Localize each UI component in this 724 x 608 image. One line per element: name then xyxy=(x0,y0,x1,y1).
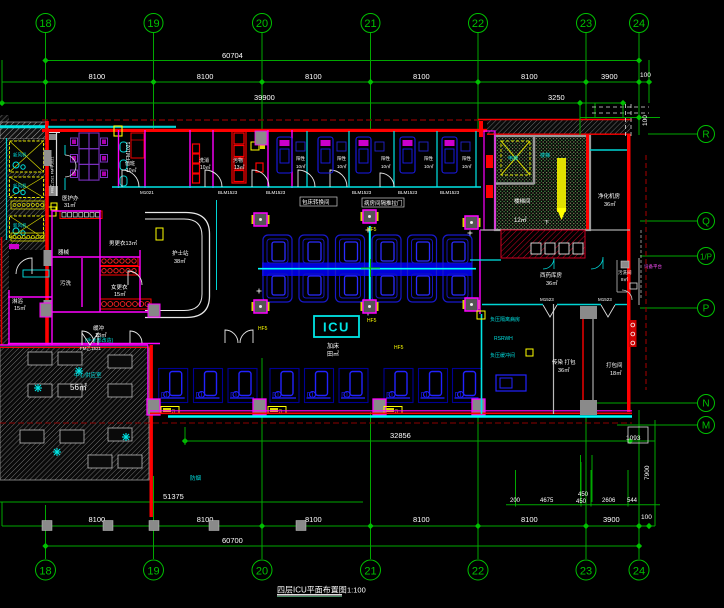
svg-text:19: 19 xyxy=(147,18,159,30)
svg-text:13㎡: 13㎡ xyxy=(234,164,245,171)
svg-text:23: 23 xyxy=(580,566,592,578)
svg-text:女更衣: 女更衣 xyxy=(111,283,128,291)
svg-text:10㎡: 10㎡ xyxy=(337,163,347,169)
svg-text:36㎡: 36㎡ xyxy=(558,366,570,374)
svg-text:21: 21 xyxy=(364,566,376,578)
svg-text:打包间: 打包间 xyxy=(606,361,623,369)
svg-text:7900: 7900 xyxy=(644,465,651,480)
svg-text:器械: 器械 xyxy=(58,248,70,256)
svg-text:新风机: 新风机 xyxy=(13,152,27,159)
svg-text:24: 24 xyxy=(633,566,645,578)
svg-text:护士站: 护士站 xyxy=(172,249,189,257)
svg-text:450: 450 xyxy=(578,492,589,498)
svg-text:3900: 3900 xyxy=(603,515,620,524)
svg-text:污物: 污物 xyxy=(233,157,243,164)
svg-text:四层ICU平面布置图: 四层ICU平面布置图 xyxy=(277,585,347,595)
svg-text:M1523: M1523 xyxy=(598,297,612,302)
svg-text:N: N xyxy=(702,399,709,410)
svg-text:31㎡: 31㎡ xyxy=(64,201,76,209)
svg-text:23: 23 xyxy=(580,18,592,30)
svg-text:19: 19 xyxy=(147,566,159,578)
svg-text:36㎡: 36㎡ xyxy=(604,200,616,208)
svg-text:8100: 8100 xyxy=(197,72,214,81)
svg-text:FM乙1521 FM甲1021: FM乙1521 FM甲1021 xyxy=(50,156,55,193)
svg-text:3250: 3250 xyxy=(548,93,565,102)
svg-text:洗消: 洗消 xyxy=(199,157,209,164)
svg-text:HF5: HF5 xyxy=(367,318,377,324)
svg-text:BLM1523: BLM1523 xyxy=(398,190,418,195)
svg-text:P: P xyxy=(703,304,710,315)
svg-text:100: 100 xyxy=(640,72,651,79)
svg-text:淋浴: 淋浴 xyxy=(12,297,24,305)
svg-text:阳性: 阳性 xyxy=(381,155,390,162)
svg-text:医护办: 医护办 xyxy=(62,194,79,202)
svg-text:阳性: 阳性 xyxy=(296,155,305,162)
svg-text:20: 20 xyxy=(256,18,268,30)
svg-text:防烟: 防烟 xyxy=(190,474,202,482)
svg-text:8100: 8100 xyxy=(305,72,322,81)
svg-text:10㎡: 10㎡ xyxy=(126,167,137,174)
svg-text:1/P: 1/P xyxy=(700,253,712,262)
svg-text:4675: 4675 xyxy=(540,498,554,504)
svg-text:8100: 8100 xyxy=(413,72,430,81)
svg-text:51375: 51375 xyxy=(163,492,184,501)
svg-text:10㎡: 10㎡ xyxy=(200,164,211,171)
svg-text:32856: 32856 xyxy=(390,431,411,440)
svg-text:楼梯间: 楼梯间 xyxy=(514,197,531,205)
svg-text:负压缓冲间: 负压缓冲间 xyxy=(490,352,515,359)
svg-text:病房间隔推拉门: 病房间隔推拉门 xyxy=(364,199,403,207)
svg-text:8100: 8100 xyxy=(305,515,322,524)
svg-text:15㎡: 15㎡ xyxy=(114,290,126,298)
svg-text:包床转换间: 包床转换间 xyxy=(302,198,330,206)
svg-text:新风机: 新风机 xyxy=(13,182,27,189)
svg-text:3900: 3900 xyxy=(601,72,618,81)
svg-text:8100: 8100 xyxy=(521,515,538,524)
svg-text:8100: 8100 xyxy=(89,72,106,81)
svg-text:10㎡: 10㎡ xyxy=(381,163,391,169)
svg-text:HF5: HF5 xyxy=(367,227,377,233)
svg-text:56㎡: 56㎡ xyxy=(70,383,87,392)
svg-text:BLM1523: BLM1523 xyxy=(352,190,372,195)
svg-text:楼梯: 楼梯 xyxy=(540,152,550,159)
svg-text:18: 18 xyxy=(39,18,51,30)
svg-text:HF5: HF5 xyxy=(394,345,404,351)
svg-text:60704: 60704 xyxy=(222,51,243,60)
svg-text:100: 100 xyxy=(642,115,649,126)
svg-text:(手术部改造): (手术部改造) xyxy=(85,337,114,344)
svg-text:8100: 8100 xyxy=(413,515,430,524)
svg-text:加床: 加床 xyxy=(327,342,339,350)
svg-text:8100: 8100 xyxy=(89,515,106,524)
svg-text:3: 3 xyxy=(395,409,398,415)
svg-text:值班: 值班 xyxy=(125,160,135,167)
svg-text:10㎡: 10㎡ xyxy=(296,163,306,169)
svg-text:100: 100 xyxy=(641,514,652,521)
svg-text:西药库房: 西药库房 xyxy=(540,271,563,279)
svg-text:阳性: 阳性 xyxy=(337,155,346,162)
svg-text:8100: 8100 xyxy=(521,72,538,81)
svg-text:缓冲: 缓冲 xyxy=(93,324,105,332)
svg-text:12㎡: 12㎡ xyxy=(514,216,527,224)
svg-text:200: 200 xyxy=(510,498,521,504)
svg-text:中心供应室: 中心供应室 xyxy=(74,371,102,379)
svg-text:BLM1523: BLM1523 xyxy=(266,190,286,195)
svg-text:21: 21 xyxy=(364,18,376,30)
svg-text:传染 打包: 传染 打包 xyxy=(552,358,576,366)
svg-text:24: 24 xyxy=(633,18,645,30)
svg-text:BLM1523: BLM1523 xyxy=(218,190,238,195)
svg-text:M1021: M1021 xyxy=(140,190,154,195)
svg-text:R: R xyxy=(702,130,709,141)
svg-text:8㎡: 8㎡ xyxy=(621,276,629,282)
svg-text:田㎡: 田㎡ xyxy=(327,350,339,358)
svg-text:负压隔离病房: 负压隔离病房 xyxy=(490,316,520,323)
svg-text:M1523: M1523 xyxy=(540,297,554,302)
svg-text:RSRWH: RSRWH xyxy=(494,336,513,342)
svg-text:男更衣13㎡: 男更衣13㎡ xyxy=(109,239,138,247)
svg-text:Q: Q xyxy=(702,217,710,228)
svg-text:污洗: 污洗 xyxy=(60,279,72,287)
svg-text:18㎡: 18㎡ xyxy=(610,369,622,377)
svg-text:450: 450 xyxy=(576,499,587,505)
svg-text:净化机房: 净化机房 xyxy=(598,192,621,200)
svg-text:36㎡: 36㎡ xyxy=(546,279,558,287)
svg-text:FM1021: FM1021 xyxy=(126,141,132,160)
svg-text:新风机: 新风机 xyxy=(13,222,27,229)
svg-text:阳性: 阳性 xyxy=(424,155,433,162)
svg-text:M: M xyxy=(702,421,710,432)
svg-text:22: 22 xyxy=(472,18,484,30)
svg-text:HF5: HF5 xyxy=(258,326,268,332)
svg-text:下: 下 xyxy=(544,220,549,226)
svg-text:20: 20 xyxy=(256,566,268,578)
svg-text:10㎡: 10㎡ xyxy=(462,163,472,169)
svg-text:阳性: 阳性 xyxy=(462,155,471,162)
svg-text:1:100: 1:100 xyxy=(347,586,366,595)
svg-text:10㎡: 10㎡ xyxy=(424,163,434,169)
svg-text:18: 18 xyxy=(39,566,51,578)
svg-text:设备平台: 设备平台 xyxy=(644,263,662,270)
svg-text:22: 22 xyxy=(472,566,484,578)
svg-text:ICU: ICU xyxy=(323,320,350,335)
svg-text:BLM1523: BLM1523 xyxy=(440,190,460,195)
svg-text:电梯: 电梯 xyxy=(508,155,518,162)
svg-text:3: 3 xyxy=(279,409,282,415)
svg-text:FM乙1521: FM乙1521 xyxy=(80,345,102,351)
svg-text:60700: 60700 xyxy=(222,536,243,545)
svg-text:2606: 2606 xyxy=(602,498,616,504)
svg-text:38㎡: 38㎡ xyxy=(174,257,186,265)
svg-text:3: 3 xyxy=(172,409,175,415)
svg-text:15㎡: 15㎡ xyxy=(14,304,26,312)
svg-text:污洗间: 污洗间 xyxy=(618,269,632,276)
svg-text:544: 544 xyxy=(627,498,638,504)
svg-text:39900: 39900 xyxy=(254,93,275,102)
